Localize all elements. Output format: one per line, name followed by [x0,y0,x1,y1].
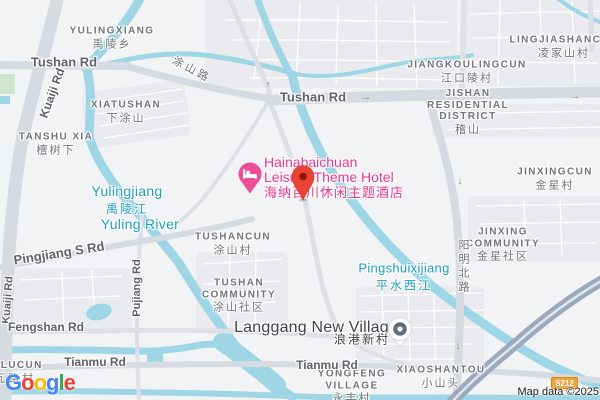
area-name-zh: 禹陵乡 [70,38,155,51]
water-label-yulingjiang: Yulingjiang 禹陵江 [91,183,162,217]
area-name-zh: 江口陵村 [407,72,526,85]
water-name-zh: 平水西江 [358,277,449,294]
area-name: RESIDENTIAL [427,99,509,111]
area-name: TUSHANCUN [195,231,271,243]
area-label-xiatushan: XIATUSHAN 下涂山 [91,99,161,124]
area-name: COMMUNITY [466,238,540,250]
area-name: JINXING [466,227,540,239]
area-name: VILLAGE [318,380,386,392]
area-name-zh: 永丰村 [318,393,386,400]
road-label-tushan-rd-east: Tushan Rd [280,90,346,105]
area-name: JIANGKOULINGCUN [407,59,526,71]
road-label-tianmu-rd-mid: Tianmu Rd [296,358,358,372]
area-name: JINXINGCUN [517,166,593,178]
map-canvas[interactable]: ↑ → → ↓ ↓ ↓ YULINGXIANG 禹陵乡 LINGJIASHANC… [0,0,600,400]
road-label-tushan-rd-west: Tushan Rd [31,55,97,70]
area-label-yongfeng-village: YONGFENG VILLAGE 永丰村 [318,369,386,400]
area-label-xiaoshantou: XIAOSHANTOU 小山头 [396,364,485,389]
area-name-zh: 下涂山 [91,112,161,125]
one-way-arrow-icon: ↑ [265,79,271,91]
area-label-lingjiashancun: LINGJIASHANCUN 凌家山村 [509,34,600,59]
one-way-arrow-icon: → [361,91,372,103]
one-way-arrow-icon: → [570,90,581,102]
area-label-jinxingcun: JINXINGCUN 金星村 [517,166,593,191]
area-label-langgang-zh: 浪港新村 [334,331,390,348]
area-label-jishan-district: JISHAN RESIDENTIAL DISTRICT 稽山 [427,88,509,136]
road-label-yangming-n-rd: 阳明北路 [455,239,471,295]
park-area [0,74,15,94]
road-label-pujiang-rd: Pujiang Rd [131,259,143,316]
one-way-arrow-icon: ↓ [457,175,463,187]
area-name-zh: 涂山社区 [202,302,276,315]
area-name: DISTRICT [427,111,509,123]
area-name: XIATUSHAN [91,99,161,111]
poi-name-line2: Leisure Theme Hotel [264,170,404,185]
area-name-zh: 涂山村 [195,244,271,257]
water-label-yuling-river: Yuling River [101,216,179,232]
area-label-jiangkoulingcun: JIANGKOULINGCUN 江口陵村 [407,59,526,84]
area-label-tushan-community: TUSHAN COMMUNITY 涂山社区 [202,278,276,315]
area-name: TUSHAN [202,278,276,290]
one-way-arrow-icon: ↓ [455,340,461,352]
area-name-zh: 稽山 [427,123,509,136]
area-name: LINGJIASHANCUN [509,34,600,46]
poi-label-hainabaichuan-hotel[interactable]: Hainabaichuan Leisure Theme Hotel 海纳百川休闲… [264,155,404,200]
road-label-tianmu-rd-west: Tianmu Rd [64,355,126,369]
area-name-zh: 檀树下 [19,144,93,157]
area-name-zh: 凌家山村 [509,47,600,60]
area-label-tanshu-xia: TANSHU XIA 檀树下 [19,131,93,156]
poi-name-zh: 海纳百川休闲主题酒店 [264,185,404,200]
area-name: JISHAN [427,88,509,100]
area-name: TANSHU XIA [19,131,93,143]
google-logo[interactable]: Google [5,372,75,394]
water-name-zh: 禹陵江 [91,200,162,217]
water-label-pingshuixijiang: Pingshuixijiang 平水西江 [358,261,449,294]
area-name-zh: 金星社区 [466,251,540,264]
area-name: XIAOSHANTOU [396,364,485,376]
area-name: YULINGXIANG [70,25,155,37]
water-name: Yulingjiang [91,183,162,199]
area-name-zh: 金星村 [517,179,593,192]
area-label-jinxing-community: JINXING COMMUNITY 金星社区 [466,227,540,264]
road-label-fengshan-rd: Fengshan Rd [8,320,84,334]
water-name: Pingshuixijiang [358,261,449,276]
area-label-yulingxiang: YULINGXIANG 禹陵乡 [70,25,155,50]
area-name-zh: 小山头 [396,377,485,390]
area-name: COMMUNITY [202,289,276,301]
area-label-tushancun: TUSHANCUN 涂山村 [195,231,271,256]
poi-name-line1: Hainabaichuan [264,155,404,170]
map-attribution: Map data ©2025 [518,386,600,398]
